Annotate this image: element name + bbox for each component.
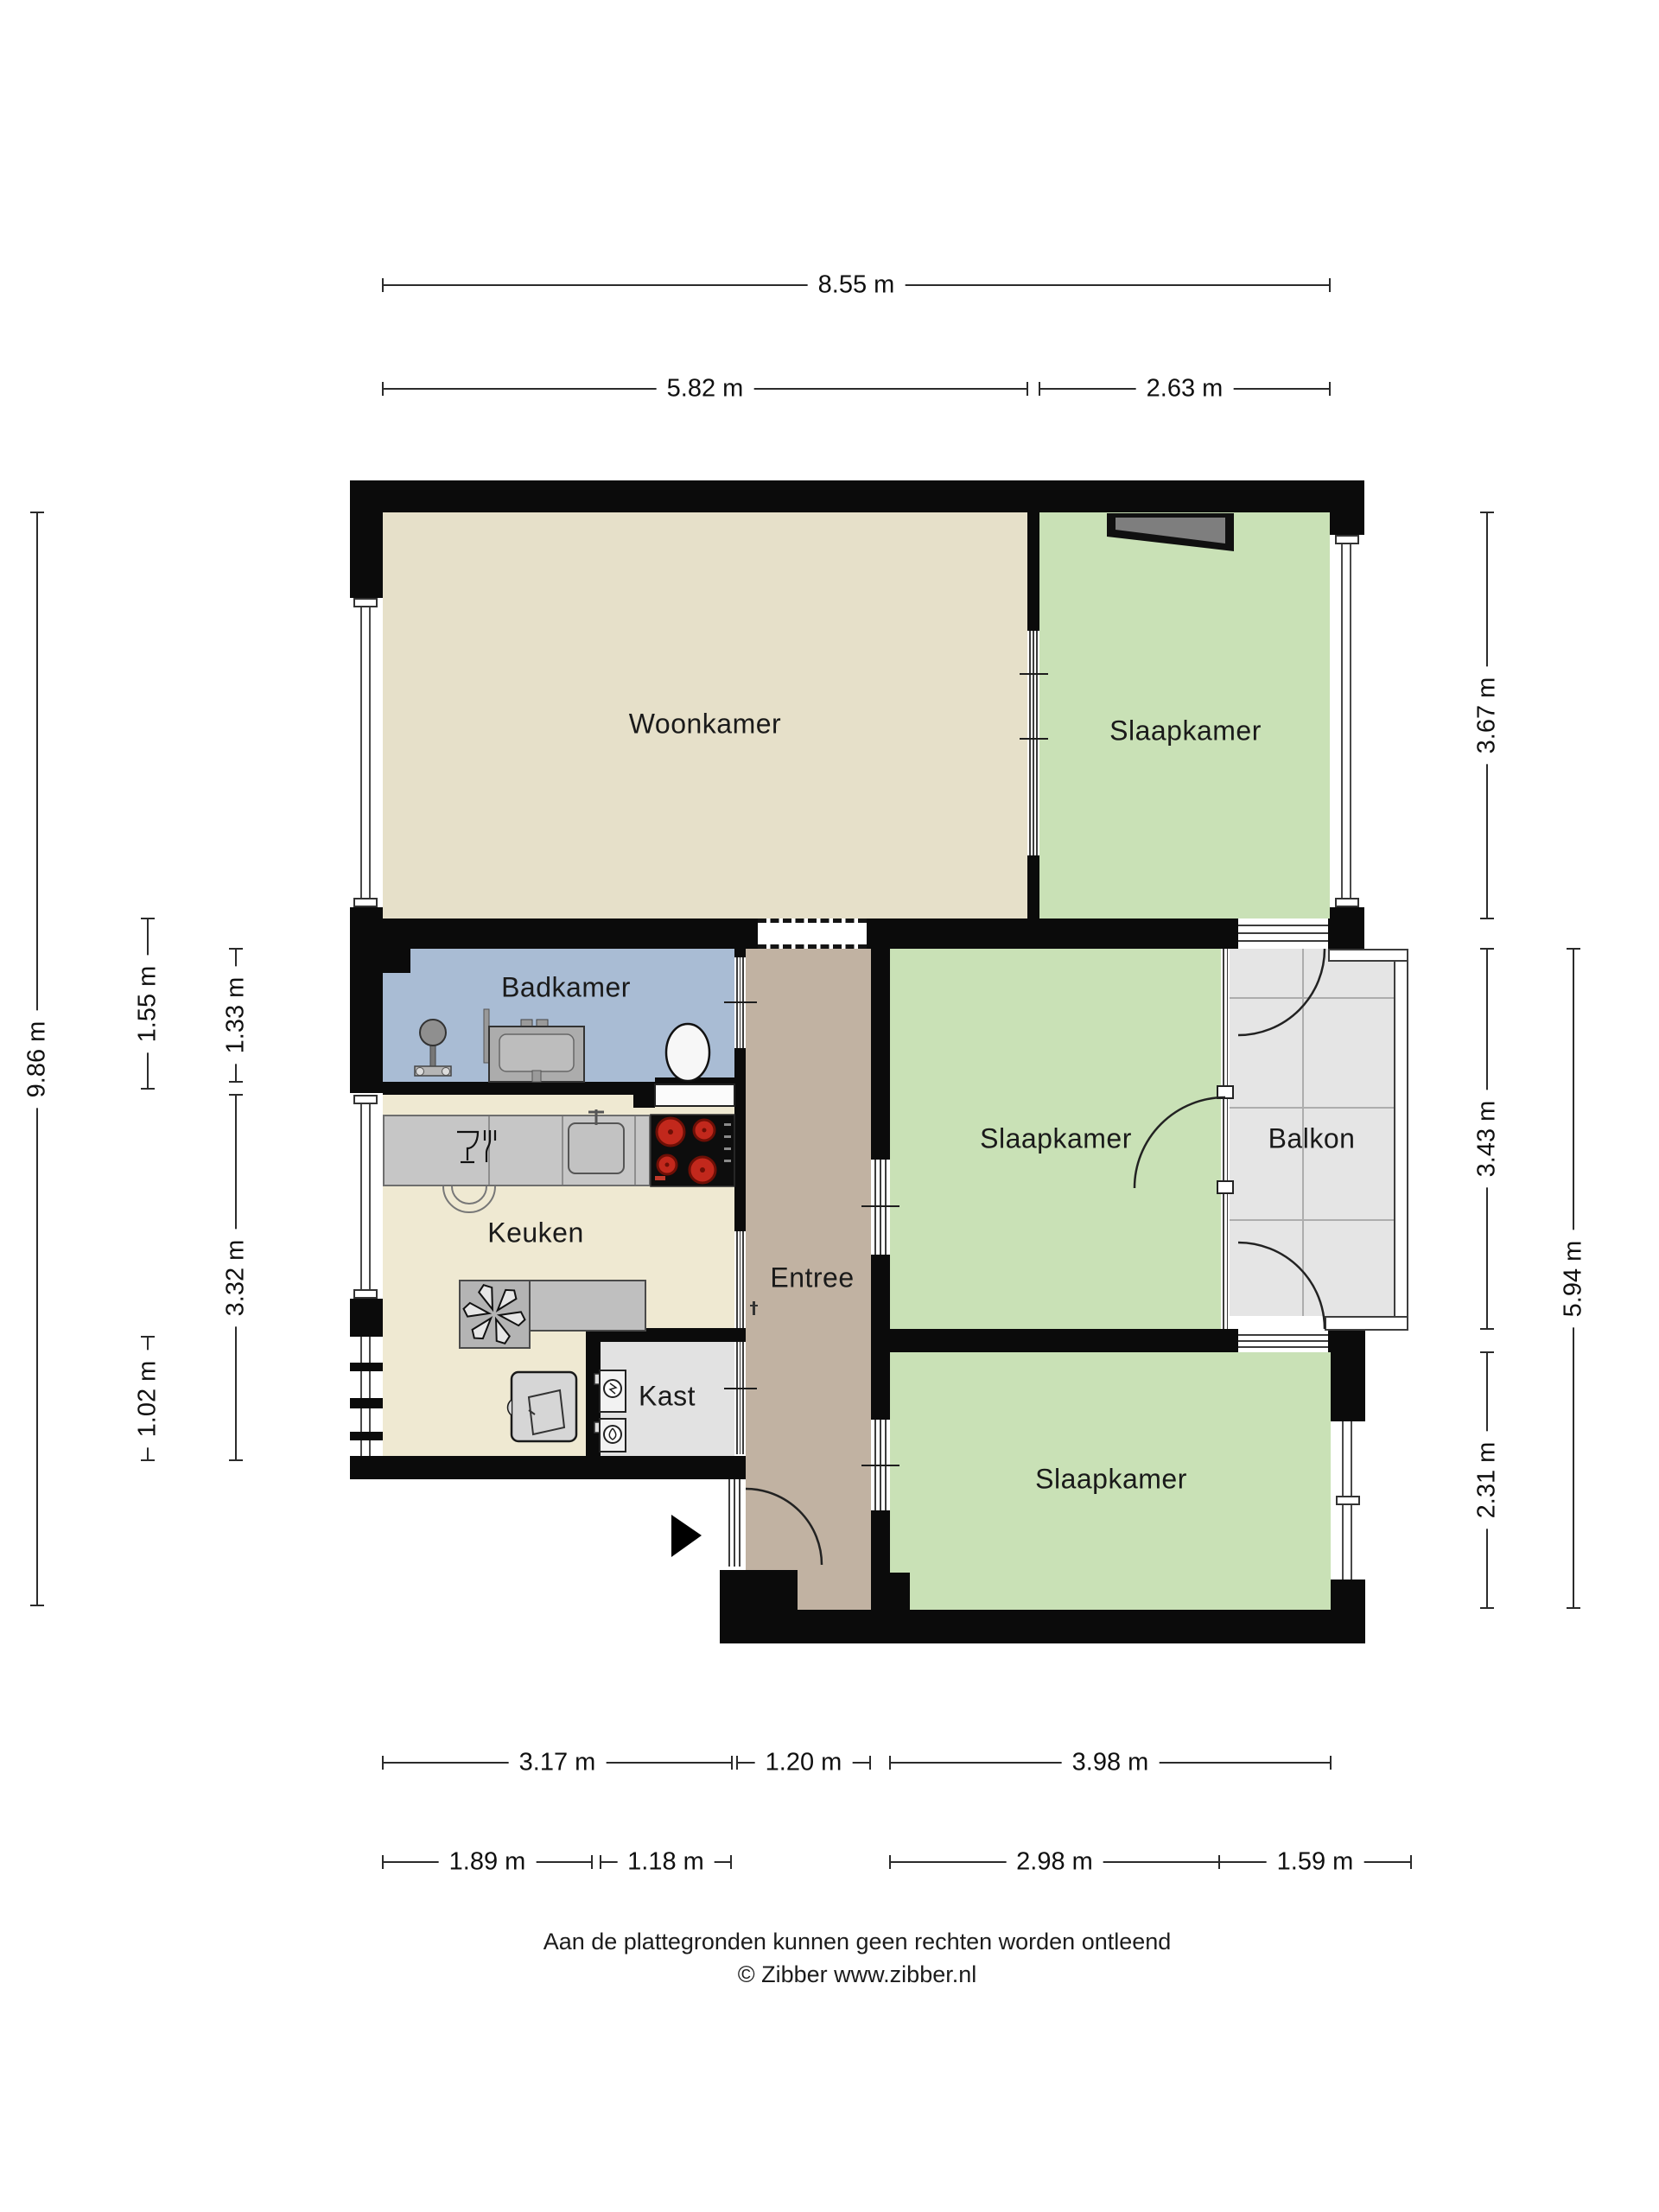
door-line bbox=[1238, 1340, 1328, 1342]
door-line bbox=[880, 1160, 881, 1255]
room-floor-keuken-lower bbox=[383, 1331, 586, 1456]
entree-mark bbox=[753, 1301, 755, 1315]
window-glass-line bbox=[1227, 949, 1229, 1329]
dimension-left-total: 9.86 m bbox=[36, 512, 38, 1605]
dimension-label: 2.63 m bbox=[1136, 375, 1234, 404]
door-line bbox=[742, 1342, 744, 1454]
dim-tick bbox=[736, 1756, 738, 1770]
dimension-label: 5.82 m bbox=[657, 375, 754, 404]
counter-divider bbox=[488, 1116, 490, 1185]
window-slaapkamer-top-right bbox=[1330, 535, 1364, 907]
room-label-entree: Entree bbox=[770, 1262, 854, 1294]
dimension-bottom2-keuken: 1.89 m bbox=[383, 1861, 592, 1863]
dimension-label: 3.17 m bbox=[509, 1749, 607, 1777]
dim-tick bbox=[141, 1088, 155, 1090]
door-line bbox=[1238, 925, 1328, 926]
wall-exterior-top bbox=[350, 480, 1364, 512]
window-glass-line bbox=[360, 1095, 362, 1299]
door-tick bbox=[724, 1388, 757, 1389]
dimension-left-keuken: 3.32 m bbox=[235, 1095, 237, 1460]
door-keuken bbox=[734, 1231, 746, 1328]
room-label-balkon: Balkon bbox=[1268, 1123, 1356, 1155]
room-label-keuken: Keuken bbox=[487, 1217, 584, 1249]
glazed-wall-balkon bbox=[1221, 949, 1230, 1329]
counter-divider bbox=[562, 1116, 563, 1185]
dimension-label: 1.02 m bbox=[134, 1350, 162, 1447]
dim-tick bbox=[1567, 948, 1580, 950]
dimension-top-total: 8.55 m bbox=[383, 284, 1330, 286]
floorplan-canvas: Woonkamer Slaapkamer Badkamer Keuken Ent… bbox=[0, 0, 1659, 2212]
wall-badkamer-notch bbox=[383, 949, 410, 973]
dimension-left-badkamer-inner: 1.33 m bbox=[235, 949, 237, 1082]
wall-middle-top bbox=[867, 918, 1238, 949]
door-kast bbox=[734, 1342, 746, 1454]
door-line bbox=[1238, 1346, 1328, 1348]
door-line bbox=[740, 1342, 741, 1454]
dim-tick bbox=[1480, 1328, 1494, 1330]
balkon-railing-bottom bbox=[1325, 1316, 1408, 1331]
window-keuken-left bbox=[350, 1095, 383, 1299]
room-label-slaapkamer-top: Slaapkamer bbox=[1109, 715, 1262, 747]
wall-kast-top bbox=[586, 1328, 746, 1342]
dimension-bottom-entree: 1.20 m bbox=[737, 1762, 870, 1764]
door-tick bbox=[861, 1205, 899, 1207]
wall-toilet-back bbox=[655, 1077, 734, 1084]
dimension-label: 3.67 m bbox=[1473, 667, 1502, 765]
dimension-label: 1.33 m bbox=[222, 967, 251, 1065]
dimension-top-right: 2.63 m bbox=[1039, 388, 1330, 390]
dimension-bottom2-balkon: 1.59 m bbox=[1219, 1861, 1411, 1863]
room-label-woonkamer: Woonkamer bbox=[629, 709, 781, 741]
dim-tick bbox=[600, 1855, 601, 1869]
door-tick bbox=[1020, 673, 1048, 675]
room-label-badkamer: Badkamer bbox=[501, 972, 631, 1004]
window-mullion bbox=[350, 1363, 383, 1371]
wall-entree-left bbox=[734, 1048, 746, 1231]
window-slaapkamer-bottom-right bbox=[1331, 1421, 1365, 1580]
wall-balkon-top-stub bbox=[1230, 918, 1238, 949]
door-line bbox=[734, 1479, 735, 1567]
entree-mark bbox=[750, 1305, 758, 1306]
dim-tick bbox=[1480, 918, 1494, 919]
dimension-label: 5.94 m bbox=[1560, 1230, 1588, 1327]
balkon-door-post bbox=[1217, 1085, 1234, 1099]
dim-tick bbox=[1218, 1855, 1220, 1869]
door-line bbox=[1238, 1334, 1328, 1336]
door-line bbox=[740, 1231, 741, 1328]
door-line bbox=[742, 1231, 744, 1328]
dim-tick bbox=[731, 1756, 733, 1770]
dimension-bottom-keuken: 3.17 m bbox=[383, 1762, 732, 1764]
door-line bbox=[736, 1342, 738, 1454]
room-label-kast: Kast bbox=[639, 1381, 696, 1413]
wall-entree-right bbox=[871, 1255, 890, 1420]
window-glass-line bbox=[360, 598, 362, 907]
window-cap bbox=[353, 1095, 378, 1104]
dim-tick bbox=[1480, 512, 1494, 513]
door-line bbox=[736, 1231, 738, 1328]
wall-badkamer-bottom-pillar bbox=[633, 1082, 655, 1108]
dimension-label: 1.55 m bbox=[134, 955, 162, 1052]
door-line bbox=[1029, 631, 1031, 855]
dimension-label: 3.43 m bbox=[1473, 1090, 1502, 1188]
door-tick bbox=[1020, 738, 1048, 740]
footer-disclaimer: Aan de plattegronden kunnen geen rechten… bbox=[543, 1929, 1172, 1955]
dimension-label: 3.32 m bbox=[222, 1229, 251, 1326]
wall-entree-right bbox=[871, 949, 890, 1160]
dim-tick bbox=[382, 382, 384, 396]
dimension-label: 1.20 m bbox=[755, 1749, 853, 1777]
dim-tick bbox=[229, 1081, 243, 1083]
window-glass-line bbox=[1341, 535, 1343, 907]
dimension-label: 3.98 m bbox=[1062, 1749, 1160, 1777]
window-cap bbox=[1335, 535, 1359, 544]
dim-tick bbox=[30, 1605, 44, 1606]
door-line bbox=[1238, 932, 1328, 934]
door-line bbox=[885, 1160, 887, 1255]
window-glass-line bbox=[1223, 949, 1224, 1329]
dimension-label: 2.98 m bbox=[1006, 1848, 1103, 1877]
dim-tick bbox=[1567, 1607, 1580, 1609]
room-label-slaapkamer-middle: Slaapkamer bbox=[980, 1123, 1132, 1155]
dim-tick bbox=[1027, 382, 1028, 396]
wall-exterior-bottom bbox=[720, 1570, 798, 1643]
dim-tick bbox=[1480, 1351, 1494, 1353]
dim-tick bbox=[591, 1855, 593, 1869]
front-door-frame bbox=[724, 1479, 746, 1567]
dimension-label: 8.55 m bbox=[808, 271, 906, 300]
dimension-bottom-slaapkamer: 3.98 m bbox=[890, 1762, 1331, 1764]
dim-tick bbox=[889, 1756, 891, 1770]
dim-tick bbox=[382, 1756, 384, 1770]
door-line bbox=[1238, 940, 1328, 942]
balkon-door-post bbox=[1217, 1180, 1234, 1194]
door-slaapkamer-middle bbox=[871, 1160, 890, 1255]
dim-tick bbox=[869, 1756, 871, 1770]
wall-exterior-bottom-left bbox=[350, 1456, 746, 1479]
window-mullion bbox=[350, 1398, 383, 1408]
door-tick bbox=[861, 1465, 899, 1466]
window-cap bbox=[353, 1289, 378, 1299]
wall-woonkamer-slaapkamer-divider bbox=[1027, 855, 1039, 918]
balkon-railing-top bbox=[1328, 949, 1408, 962]
dim-tick bbox=[141, 918, 155, 919]
window-glass-line bbox=[369, 598, 371, 907]
window-cap bbox=[1335, 898, 1359, 907]
dim-tick bbox=[889, 1855, 891, 1869]
counter-divider bbox=[634, 1116, 636, 1185]
wall-slaapkamer-divider-middle bbox=[890, 1329, 1238, 1352]
wall-middle-top-right bbox=[1328, 918, 1364, 949]
door-balkon-top bbox=[1238, 918, 1328, 949]
dim-tick bbox=[1039, 382, 1040, 396]
dimension-right-middle: 3.43 m bbox=[1486, 949, 1488, 1329]
dimension-top-left: 5.82 m bbox=[383, 388, 1027, 390]
wall-bottom-step bbox=[877, 1573, 910, 1610]
dim-tick bbox=[141, 1336, 155, 1338]
dimension-label: 1.59 m bbox=[1267, 1848, 1364, 1877]
wall-woonkamer-bottom bbox=[350, 918, 758, 949]
dim-tick bbox=[382, 1855, 384, 1869]
dimension-label: 1.18 m bbox=[617, 1848, 715, 1877]
dimension-left-window: 1.02 m bbox=[147, 1337, 149, 1460]
window-glass-line bbox=[369, 1095, 371, 1299]
dim-tick bbox=[1329, 382, 1331, 396]
wall-exterior-left bbox=[350, 480, 383, 598]
wall-entree-left bbox=[734, 949, 746, 957]
dim-tick bbox=[1329, 278, 1331, 292]
door-line bbox=[1033, 631, 1034, 855]
door-line bbox=[874, 1160, 876, 1255]
door-line bbox=[739, 1479, 741, 1567]
dimension-label: 1.89 m bbox=[439, 1848, 537, 1877]
dimension-right-lower-total: 5.94 m bbox=[1573, 949, 1574, 1608]
dim-tick bbox=[229, 948, 243, 950]
dim-tick bbox=[229, 1459, 243, 1461]
wall-exterior-right bbox=[1330, 480, 1364, 535]
dim-tick bbox=[1410, 1855, 1412, 1869]
wall-kast-left bbox=[586, 1342, 601, 1456]
room-floor-badkamer bbox=[383, 949, 734, 1082]
wall-badkamer-bottom bbox=[383, 1082, 633, 1095]
window-woonkamer-left bbox=[350, 598, 383, 907]
door-tick bbox=[724, 1001, 757, 1003]
wall-exterior-left bbox=[350, 1299, 383, 1337]
footer-copyright: © Zibber www.zibber.nl bbox=[738, 1961, 977, 1988]
door-line bbox=[1036, 631, 1038, 855]
wall-woonkamer-slaapkamer-divider bbox=[1027, 512, 1039, 631]
balkon-tile-line bbox=[1230, 997, 1394, 999]
dimension-left-badkamer-outer: 1.55 m bbox=[147, 918, 149, 1089]
dimension-right-bottom: 2.31 m bbox=[1486, 1352, 1488, 1608]
dimension-label: 9.86 m bbox=[23, 1010, 52, 1108]
dimension-right-top: 3.67 m bbox=[1486, 512, 1488, 918]
dim-tick bbox=[229, 1094, 243, 1096]
dim-tick bbox=[1480, 1607, 1494, 1609]
balkon-tile-line bbox=[1230, 1219, 1394, 1221]
sliding-door-woonkamer-slaapkamer bbox=[1027, 631, 1039, 855]
dim-tick bbox=[1330, 1756, 1332, 1770]
window-mullion bbox=[350, 1432, 383, 1440]
balkon-railing-right bbox=[1394, 949, 1408, 1331]
kitchen-counter bbox=[383, 1115, 651, 1186]
dim-tick bbox=[141, 1459, 155, 1461]
dim-tick bbox=[382, 278, 384, 292]
door-balkon-bottom bbox=[1238, 1329, 1328, 1352]
open-passage-dashed bbox=[758, 918, 867, 949]
dimension-bottom2-kast: 1.18 m bbox=[601, 1861, 731, 1863]
dim-tick bbox=[1480, 948, 1494, 950]
window-cap bbox=[1336, 1496, 1360, 1505]
dimension-label: 2.31 m bbox=[1473, 1432, 1502, 1529]
window-glass-line bbox=[1350, 535, 1351, 907]
door-line bbox=[728, 1479, 730, 1567]
dimension-bottom2-slaapkamer: 2.98 m bbox=[890, 1861, 1219, 1863]
wall-exterior-bottom bbox=[798, 1610, 1365, 1643]
dim-tick bbox=[730, 1855, 732, 1869]
wall-exterior-right-lower bbox=[1331, 1329, 1365, 1421]
dim-tick bbox=[30, 512, 44, 513]
balkon-tile-line bbox=[1230, 1107, 1394, 1109]
room-label-slaapkamer-bottom: Slaapkamer bbox=[1035, 1464, 1187, 1496]
entrance-arrow-icon bbox=[671, 1515, 702, 1557]
window-cap bbox=[353, 898, 378, 907]
window-cap bbox=[353, 598, 378, 607]
